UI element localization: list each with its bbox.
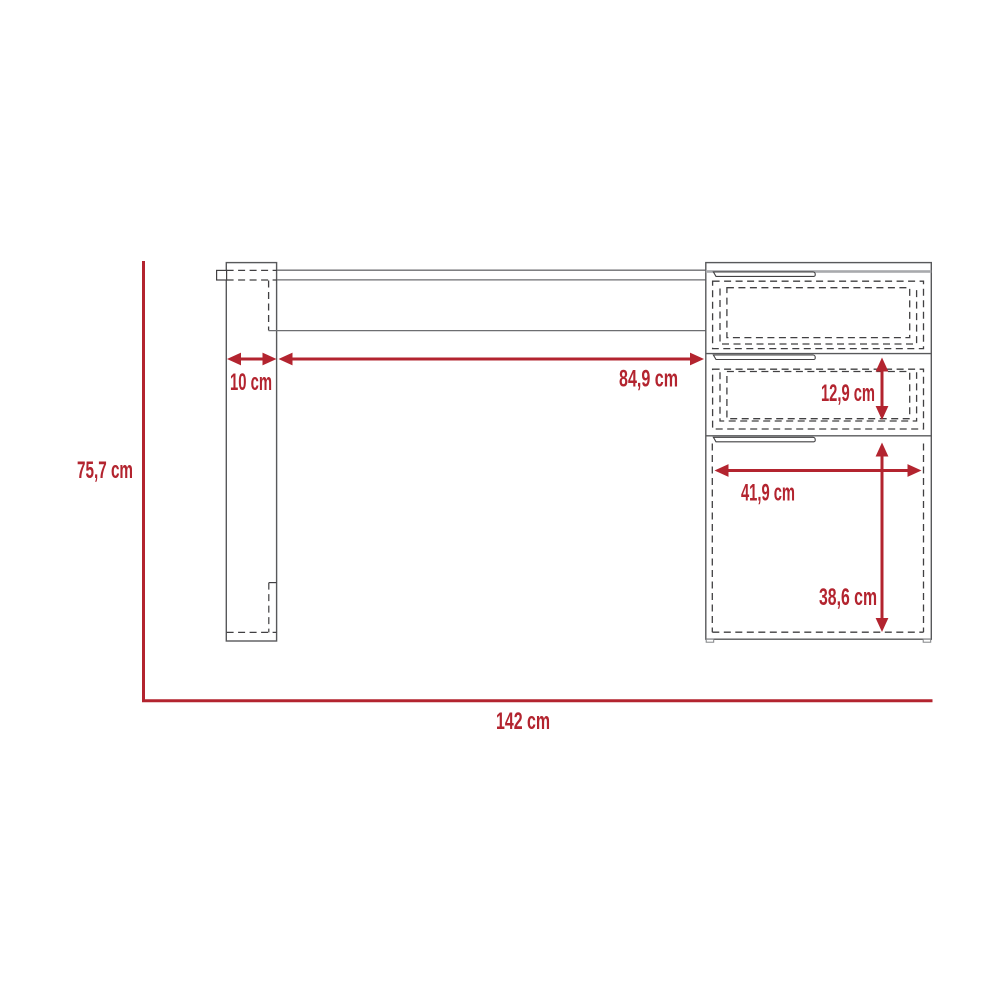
svg-text:75,7 cm: 75,7 cm	[77, 457, 133, 484]
svg-text:41,9 cm: 41,9 cm	[741, 480, 795, 507]
svg-text:38,6 cm: 38,6 cm	[819, 584, 877, 611]
svg-text:142 cm: 142 cm	[496, 708, 550, 735]
svg-text:10 cm: 10 cm	[230, 369, 272, 396]
svg-text:12,9 cm: 12,9 cm	[821, 380, 875, 407]
svg-text:84,9 cm: 84,9 cm	[619, 366, 678, 393]
